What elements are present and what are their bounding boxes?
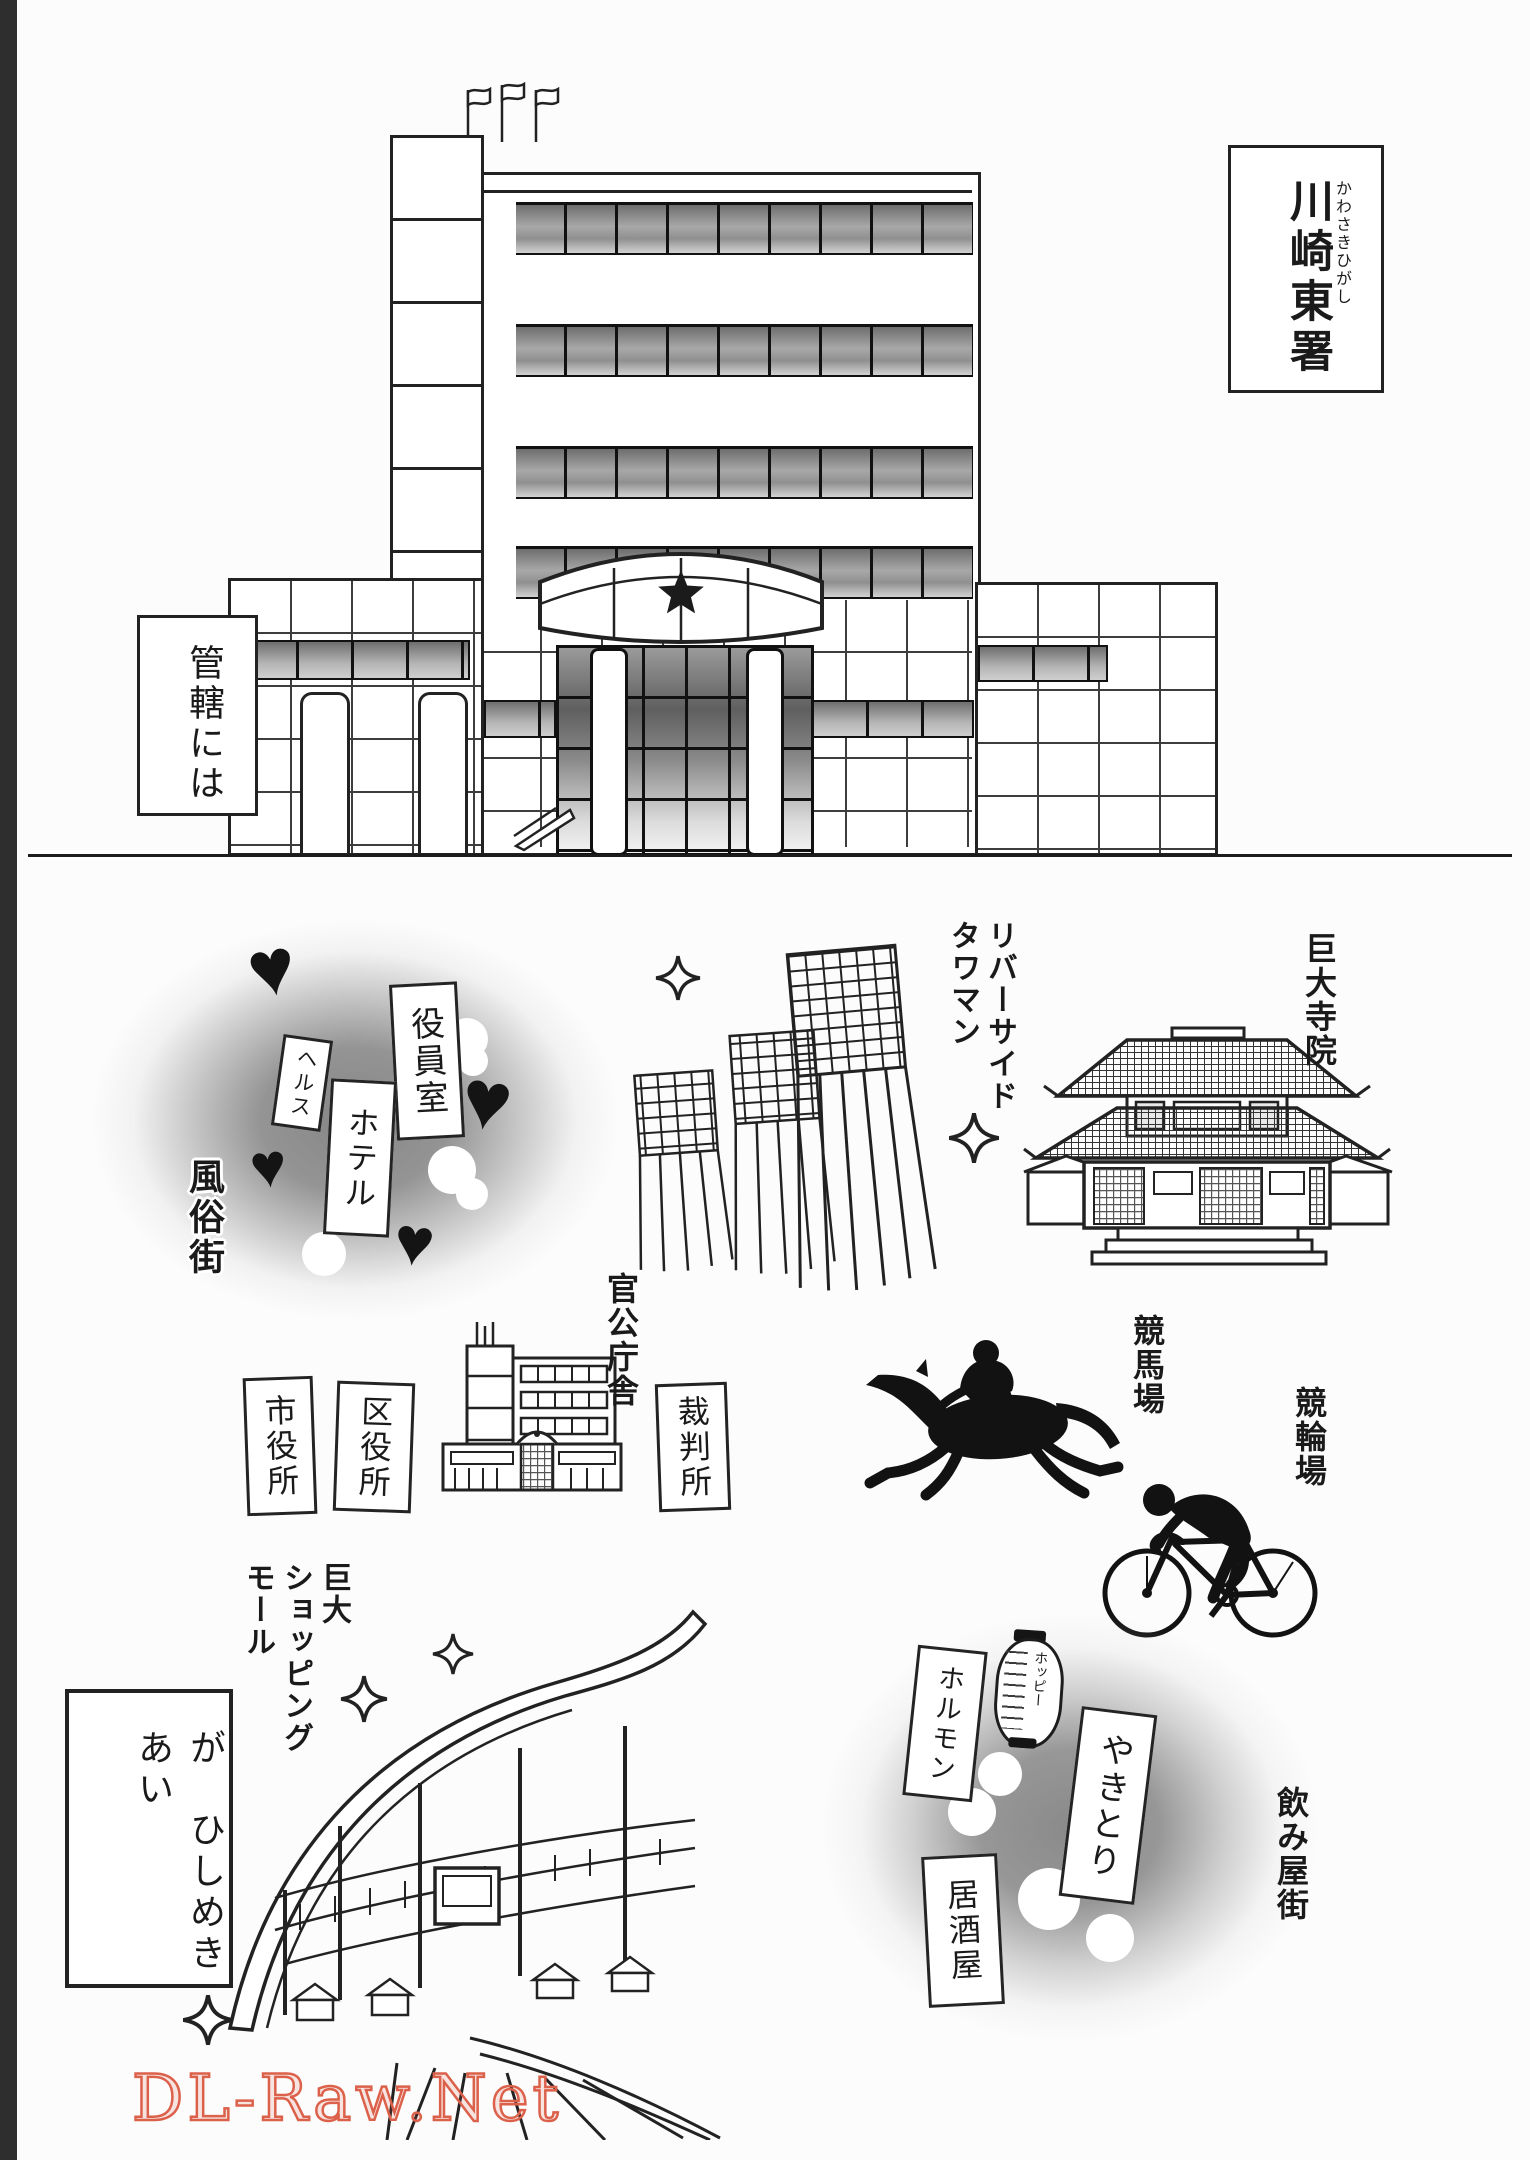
sign-izakaya: 居酒屋 bbox=[921, 1853, 1005, 2008]
annex-right-windows bbox=[978, 645, 1108, 682]
caption-text: 管轄には bbox=[178, 644, 230, 804]
label-mall: 巨大 ショッピング モール bbox=[238, 1562, 352, 1754]
sparkle-icon bbox=[340, 1675, 388, 1723]
window-band-3 bbox=[516, 446, 973, 499]
label-temple: 巨大寺院 bbox=[1296, 932, 1342, 1068]
window-band-1 bbox=[516, 202, 973, 255]
glow-dot bbox=[302, 1232, 346, 1276]
sparkle-icon bbox=[432, 1633, 474, 1675]
paper-lantern: ホッピー bbox=[991, 1634, 1061, 1750]
police-station-illustration: 管轄には 川崎東署 かわさきひがし bbox=[0, 0, 1530, 856]
sign-court: 裁判所 bbox=[655, 1382, 731, 1512]
side-window-left bbox=[484, 700, 556, 738]
label-keirin: 競輪場 bbox=[1286, 1386, 1332, 1488]
sparkle-icon bbox=[655, 955, 701, 1001]
racehorse-silhouette bbox=[860, 1325, 1135, 1525]
caption-box-crowded: が ひしめきあい bbox=[65, 1689, 233, 1988]
entrance-column-right bbox=[746, 648, 784, 856]
sign-city-hall: 市役所 bbox=[243, 1376, 318, 1516]
label-drinking-district: 飲み屋街 bbox=[1268, 1786, 1314, 1922]
sparkle-icon bbox=[948, 1112, 1000, 1164]
manga-page: 管轄には 川崎東署 かわさきひがし ♥ ♥ ♥ ♥ 役員室 ヘルス ホテル 風俗… bbox=[0, 0, 1530, 2160]
annex-right bbox=[975, 582, 1218, 856]
label-towers: リバーサイド タワマン bbox=[944, 920, 1018, 1112]
parapet-line bbox=[481, 190, 972, 193]
watermark: DL-Raw.Net bbox=[132, 2062, 562, 2136]
window-band-2 bbox=[516, 324, 973, 377]
glow-dot bbox=[1086, 1914, 1134, 1962]
label-keiba: 競馬場 bbox=[1124, 1314, 1170, 1416]
heart-icon: ♥ bbox=[390, 1206, 438, 1278]
sign-hotel: ホテル bbox=[323, 1078, 397, 1237]
entrance-column-left bbox=[590, 648, 628, 856]
station-name-box: 川崎東署 かわさきひがし bbox=[1228, 145, 1384, 393]
glow-dot bbox=[456, 1178, 488, 1210]
pilaster-2 bbox=[418, 692, 468, 853]
lantern-text: ホッピー bbox=[1028, 1650, 1052, 1707]
pilaster-1 bbox=[300, 692, 350, 853]
glow-dot bbox=[458, 1046, 488, 1076]
heart-icon: ♥ bbox=[247, 1134, 290, 1200]
panel-divider bbox=[28, 854, 1512, 857]
caption-text: が ひしめきあい bbox=[127, 1729, 231, 1984]
sparkle-icon bbox=[182, 1994, 234, 2046]
glow-dot bbox=[978, 1752, 1022, 1796]
sign-ward-office: 区役所 bbox=[333, 1381, 415, 1514]
station-name-furigana: かわさきひがし bbox=[1329, 180, 1353, 306]
caption-box-jurisdiction: 管轄には bbox=[137, 615, 258, 816]
side-window-right bbox=[812, 700, 974, 738]
entrance-canopy bbox=[536, 542, 826, 654]
label-red-light-district: 風俗街 bbox=[178, 1158, 230, 1278]
sign-yakuin: 役員室 bbox=[389, 981, 465, 1140]
entrance-steps bbox=[512, 788, 584, 852]
label-government: 官公庁舎 bbox=[598, 1272, 644, 1408]
annex-left-windows bbox=[242, 640, 470, 680]
